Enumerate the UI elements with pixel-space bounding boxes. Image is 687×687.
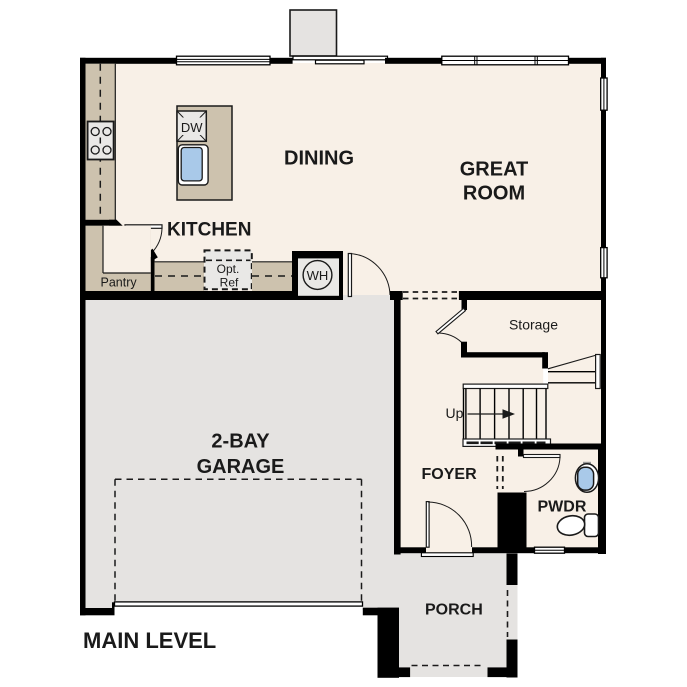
svg-text:Storage: Storage (509, 317, 558, 333)
svg-text:ROOM: ROOM (463, 183, 525, 205)
svg-text:Ref: Ref (220, 275, 239, 289)
svg-text:Pantry: Pantry (101, 276, 138, 290)
svg-text:2-BAY: 2-BAY (211, 431, 270, 453)
svg-text:DW: DW (181, 120, 203, 135)
svg-text:Opt.: Opt. (217, 262, 240, 276)
svg-text:DINING: DINING (284, 148, 354, 170)
svg-text:GARAGE: GARAGE (197, 456, 285, 478)
svg-text:Up: Up (446, 405, 464, 421)
svg-text:FOYER: FOYER (422, 466, 478, 483)
svg-text:GREAT: GREAT (460, 159, 529, 181)
svg-text:KITCHEN: KITCHEN (167, 220, 251, 241)
svg-text:WH: WH (307, 268, 329, 283)
svg-text:MAIN LEVEL: MAIN LEVEL (83, 628, 216, 653)
svg-text:PORCH: PORCH (425, 602, 483, 619)
svg-text:PWDR: PWDR (538, 499, 587, 516)
